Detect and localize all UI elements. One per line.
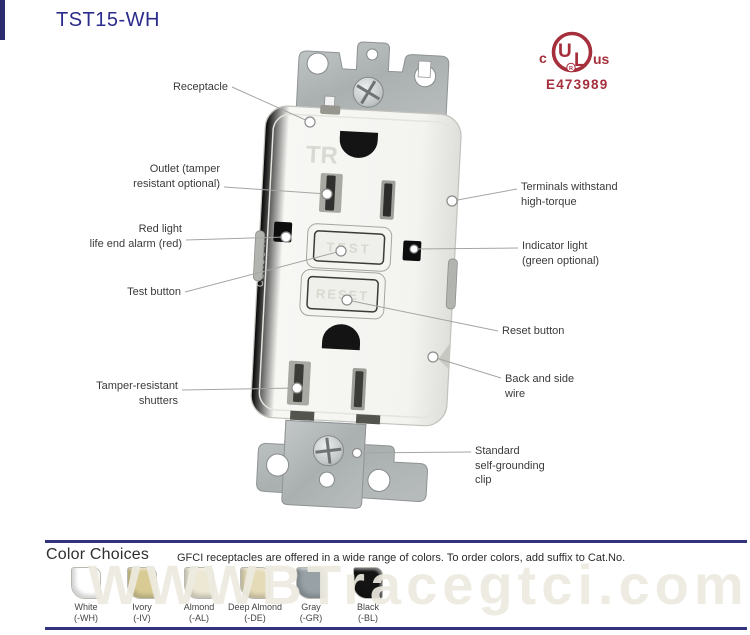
- gfci-outlet: TR CLASS A TEST RESET: [242, 37, 469, 513]
- spec-sheet-page: TST15-WH: [0, 0, 750, 635]
- point-receptacle: [305, 117, 315, 127]
- body-top-tab: [320, 105, 340, 115]
- callout-shutters: Tamper-resistant shutters: [48, 379, 178, 408]
- point-terminals: [447, 196, 457, 206]
- strap-hole-bl: [266, 454, 289, 477]
- line-terminals: [452, 189, 517, 201]
- body-bottom-tab-left: [290, 411, 314, 421]
- ul-letter-l: L: [574, 50, 586, 71]
- strap-cutout-right: [418, 61, 431, 78]
- ul-prefix-c: c: [539, 50, 547, 66]
- ul-file-number: E473989: [546, 77, 608, 92]
- point-red-light: [281, 232, 291, 242]
- callout-red-light: Red light life end alarm (red): [52, 222, 182, 251]
- test-button-emboss: TEST: [326, 239, 372, 256]
- point-indicator: [410, 245, 418, 253]
- section-divider-top: [45, 540, 747, 543]
- strap-hole-br: [367, 469, 390, 492]
- strap-hole-left: [307, 53, 329, 75]
- mounting-strap-bottom: [256, 419, 430, 512]
- point-back-wire: [428, 352, 438, 362]
- callout-back-wire: Back and side wire: [505, 372, 615, 401]
- strap-tab-hole: [366, 49, 378, 61]
- body-bottom-tab-right: [356, 414, 380, 424]
- mounting-strap-top: [296, 39, 450, 118]
- tr-marking: TR: [305, 141, 338, 170]
- strap-small-hole: [319, 472, 335, 488]
- watermark: WWWBTracegtci.com: [88, 552, 750, 630]
- callout-terminals: Terminals withstand high-torque: [521, 180, 651, 209]
- point-outlet: [322, 189, 332, 199]
- callout-indicator: Indicator light (green optional): [522, 239, 642, 268]
- ul-suffix-us: us: [593, 51, 610, 67]
- ul-certification-mark: U L c us R E473989: [539, 34, 610, 93]
- point-shutters: [292, 383, 302, 393]
- callout-grounding-clip: Standard self-grounding clip: [475, 444, 585, 488]
- point-reset: [342, 295, 352, 305]
- callout-test-button: Test button: [61, 285, 181, 300]
- callout-outlet: Outlet (tamper resistant optional): [92, 162, 220, 191]
- point-clip: [353, 449, 362, 458]
- ul-letter-u: U: [558, 41, 572, 62]
- registered-r: R: [569, 66, 573, 72]
- callout-receptacle: Receptacle: [98, 80, 228, 95]
- receptacle-body: TR CLASS A TEST RESET: [246, 102, 465, 428]
- point-test: [336, 246, 346, 256]
- callout-reset: Reset button: [502, 324, 612, 339]
